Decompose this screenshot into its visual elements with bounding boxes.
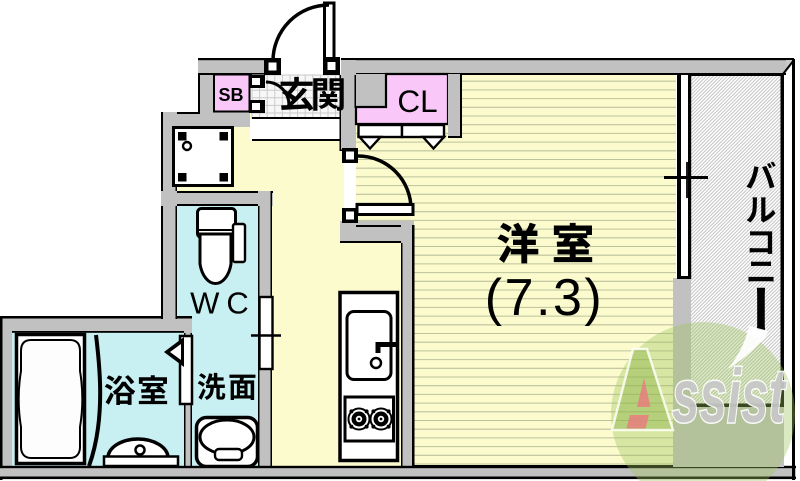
svg-text:WC: WC (190, 286, 256, 321)
svg-text:SB: SB (218, 85, 243, 105)
svg-text:CL: CL (397, 83, 437, 119)
svg-text:ssist: ssist (672, 353, 787, 439)
svg-text:(7.3): (7.3) (485, 269, 604, 327)
